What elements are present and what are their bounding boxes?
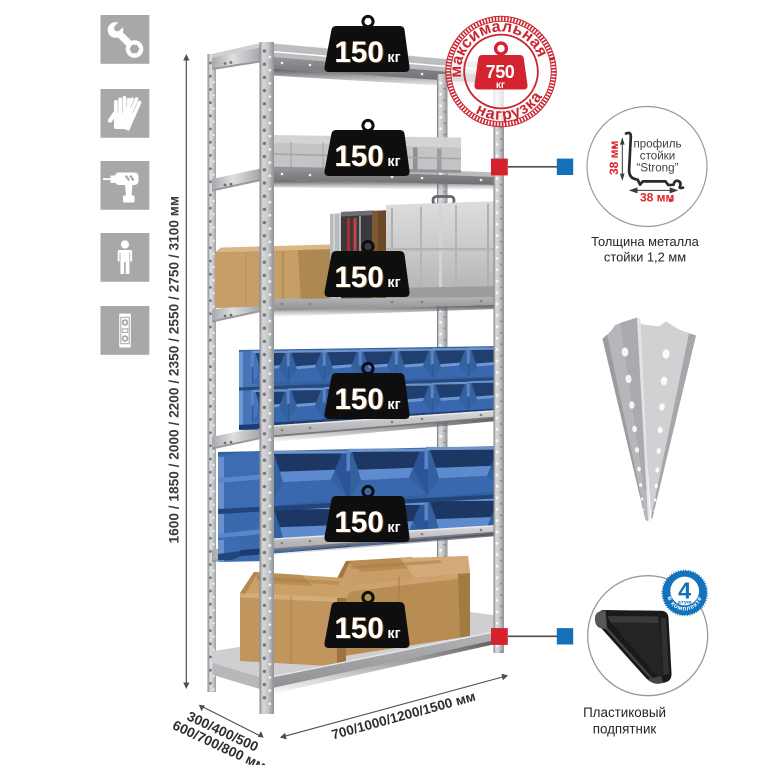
svg-text:150: 150: [334, 612, 383, 645]
svg-text:38 мм: 38 мм: [640, 191, 675, 205]
svg-text:кг: кг: [387, 397, 400, 413]
svg-text:“Strong”: “Strong”: [637, 162, 679, 175]
svg-text:кг: кг: [496, 80, 505, 91]
svg-text:38 мм: 38 мм: [607, 140, 621, 175]
svg-text:кг: кг: [387, 275, 400, 291]
svg-text:1600 / 1850 / 2000 / 2200 / 23: 1600 / 1850 / 2000 / 2200 / 2350 / 2550 …: [166, 196, 181, 544]
svg-text:150: 150: [334, 383, 383, 416]
svg-text:Пластиковый: Пластиковый: [583, 705, 666, 720]
svg-text:150: 150: [334, 140, 383, 173]
svg-text:150: 150: [334, 36, 383, 69]
svg-text:150: 150: [334, 506, 383, 539]
svg-text:750: 750: [486, 62, 515, 82]
svg-text:150: 150: [334, 261, 383, 294]
svg-text:Толщина металла: Толщина металла: [591, 234, 700, 249]
svg-text:подпятник: подпятник: [593, 722, 657, 737]
svg-text:стойки 1,2 мм: стойки 1,2 мм: [604, 250, 686, 265]
svg-text:кг: кг: [387, 154, 400, 170]
svg-text:штуки: штуки: [678, 599, 692, 604]
svg-text:кг: кг: [387, 50, 400, 66]
svg-text:700/1000/1200/1500 мм: 700/1000/1200/1500 мм: [330, 689, 477, 743]
svg-text:кг: кг: [387, 520, 400, 536]
svg-text:кг: кг: [387, 626, 400, 642]
